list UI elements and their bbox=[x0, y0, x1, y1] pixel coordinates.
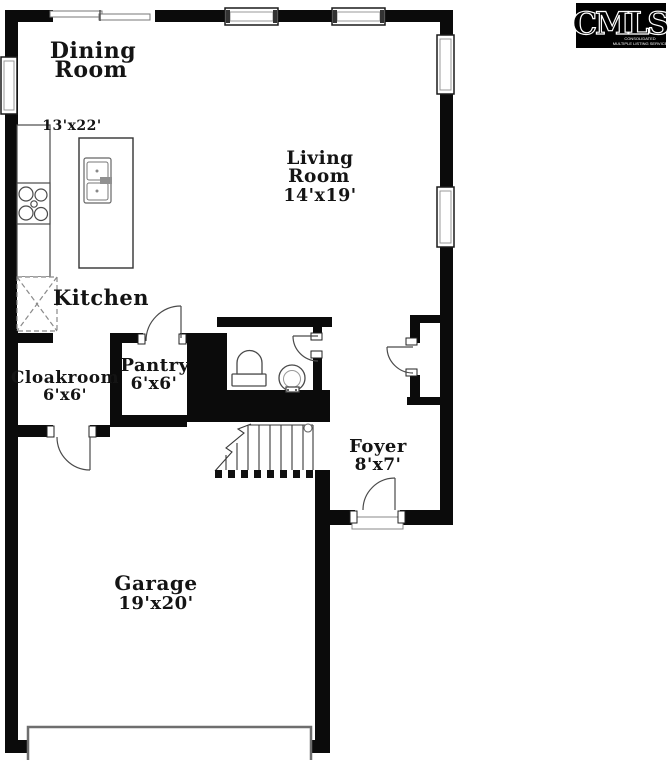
stair-newel bbox=[304, 424, 312, 432]
cmls-logo: CMLS CONSOLIDATED MULTIPLE LISTING SERVI… bbox=[572, 3, 668, 48]
island-sink-icon bbox=[84, 158, 112, 203]
cloakroom-dims: 6'x6' bbox=[43, 385, 87, 404]
pedestal-sink-icon bbox=[279, 365, 305, 392]
wall-top-3 bbox=[277, 10, 333, 22]
wall-garage-right bbox=[315, 470, 330, 753]
window-right-1 bbox=[437, 35, 454, 94]
wall-top-2 bbox=[155, 10, 227, 22]
room-labels: Dining Room 13'x22' Living Room 14'x19' … bbox=[11, 38, 407, 614]
wall-pantry-bottom bbox=[122, 415, 187, 427]
wall-cloakroom-bottom-left bbox=[5, 425, 53, 437]
foyer-label: Foyer bbox=[349, 436, 407, 457]
pantry-door bbox=[138, 306, 186, 344]
pantry-dims: 6'x6' bbox=[131, 374, 178, 394]
living-room-dims: 14'x19' bbox=[283, 186, 356, 206]
cmls-logo-subtitle-2: MULTIPLE LISTING SERVICE bbox=[613, 41, 668, 46]
bathroom-door bbox=[293, 333, 322, 361]
dining-room-label-line2: Room bbox=[55, 57, 128, 83]
wall-foyer-bottom-right bbox=[400, 510, 453, 525]
wall-bathroom-right-lower bbox=[313, 357, 322, 395]
kitchen-label: Kitchen bbox=[53, 285, 149, 310]
stair-base-markers bbox=[215, 470, 313, 478]
foyer-dims: 8'x7' bbox=[355, 455, 402, 475]
window-top-1 bbox=[225, 8, 278, 25]
toilet-icon bbox=[232, 351, 266, 387]
garage-door bbox=[28, 727, 311, 760]
dining-room-dims: 13'x22' bbox=[42, 118, 101, 134]
stair-break-line bbox=[215, 424, 251, 471]
garage-label: Garage bbox=[114, 571, 197, 595]
floor-plan: Dining Room 13'x22' Living Room 14'x19' … bbox=[0, 0, 669, 760]
front-door bbox=[350, 478, 405, 529]
wall-closet-top bbox=[410, 315, 440, 323]
wall-stair-landing bbox=[187, 390, 330, 422]
wall-cloakroom-top bbox=[10, 333, 53, 343]
window-top-thin-left bbox=[50, 10, 150, 21]
garage-dims: 19'x20' bbox=[118, 593, 193, 614]
window-top-2 bbox=[332, 8, 385, 25]
staircase-icon bbox=[215, 424, 313, 478]
window-right-2 bbox=[437, 187, 454, 247]
window-left bbox=[1, 57, 17, 114]
pantry-label: Pantry bbox=[120, 355, 189, 376]
living-room-label-line2: Room bbox=[288, 166, 350, 187]
front-door-sill bbox=[352, 517, 403, 529]
bathroom-fixtures bbox=[232, 351, 305, 393]
wall-closet-stub-lower bbox=[410, 375, 420, 397]
closet-door bbox=[387, 338, 417, 376]
stove-icon bbox=[17, 183, 50, 224]
wall-closet-bottom bbox=[407, 397, 440, 405]
refrigerator-box-icon bbox=[17, 277, 57, 331]
cloakroom-door bbox=[47, 426, 96, 470]
wall-bathroom-top bbox=[217, 317, 332, 327]
